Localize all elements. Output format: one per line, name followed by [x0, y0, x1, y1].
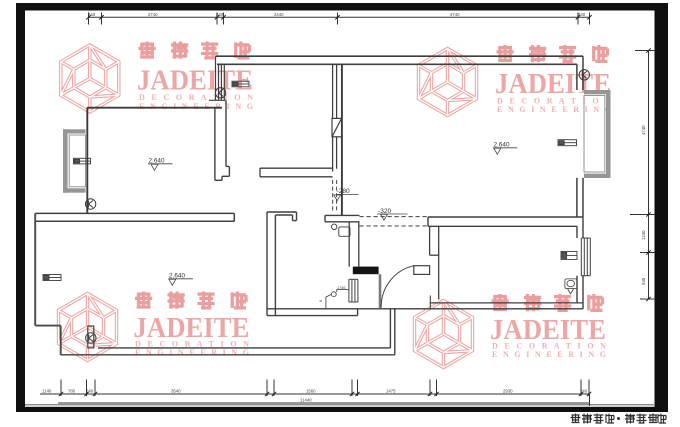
svg-text:4740: 4740	[641, 125, 646, 135]
svg-text:2740: 2740	[148, 12, 158, 17]
svg-text:D E C O R A T I O N: D E C O R A T I O N	[497, 97, 611, 106]
svg-text:240: 240	[216, 12, 224, 17]
svg-text:240: 240	[580, 389, 588, 394]
svg-text:1746: 1746	[337, 286, 345, 290]
svg-text:940: 940	[641, 277, 646, 285]
svg-text:2440: 2440	[274, 12, 284, 17]
svg-text:780: 780	[68, 389, 76, 394]
svg-text:8: 8	[319, 300, 323, 302]
svg-text:2930: 2930	[503, 389, 513, 394]
svg-text:11440: 11440	[300, 398, 312, 403]
svg-text:1475: 1475	[386, 389, 396, 394]
svg-text:1240: 1240	[641, 230, 646, 240]
svg-text:4740: 4740	[450, 12, 460, 17]
svg-text:1140: 1140	[42, 389, 52, 394]
svg-text:D E C O R A T I O N: D E C O R A T I O N	[139, 93, 253, 102]
svg-text:3540: 3540	[171, 389, 181, 394]
svg-text:1560: 1560	[306, 389, 316, 394]
